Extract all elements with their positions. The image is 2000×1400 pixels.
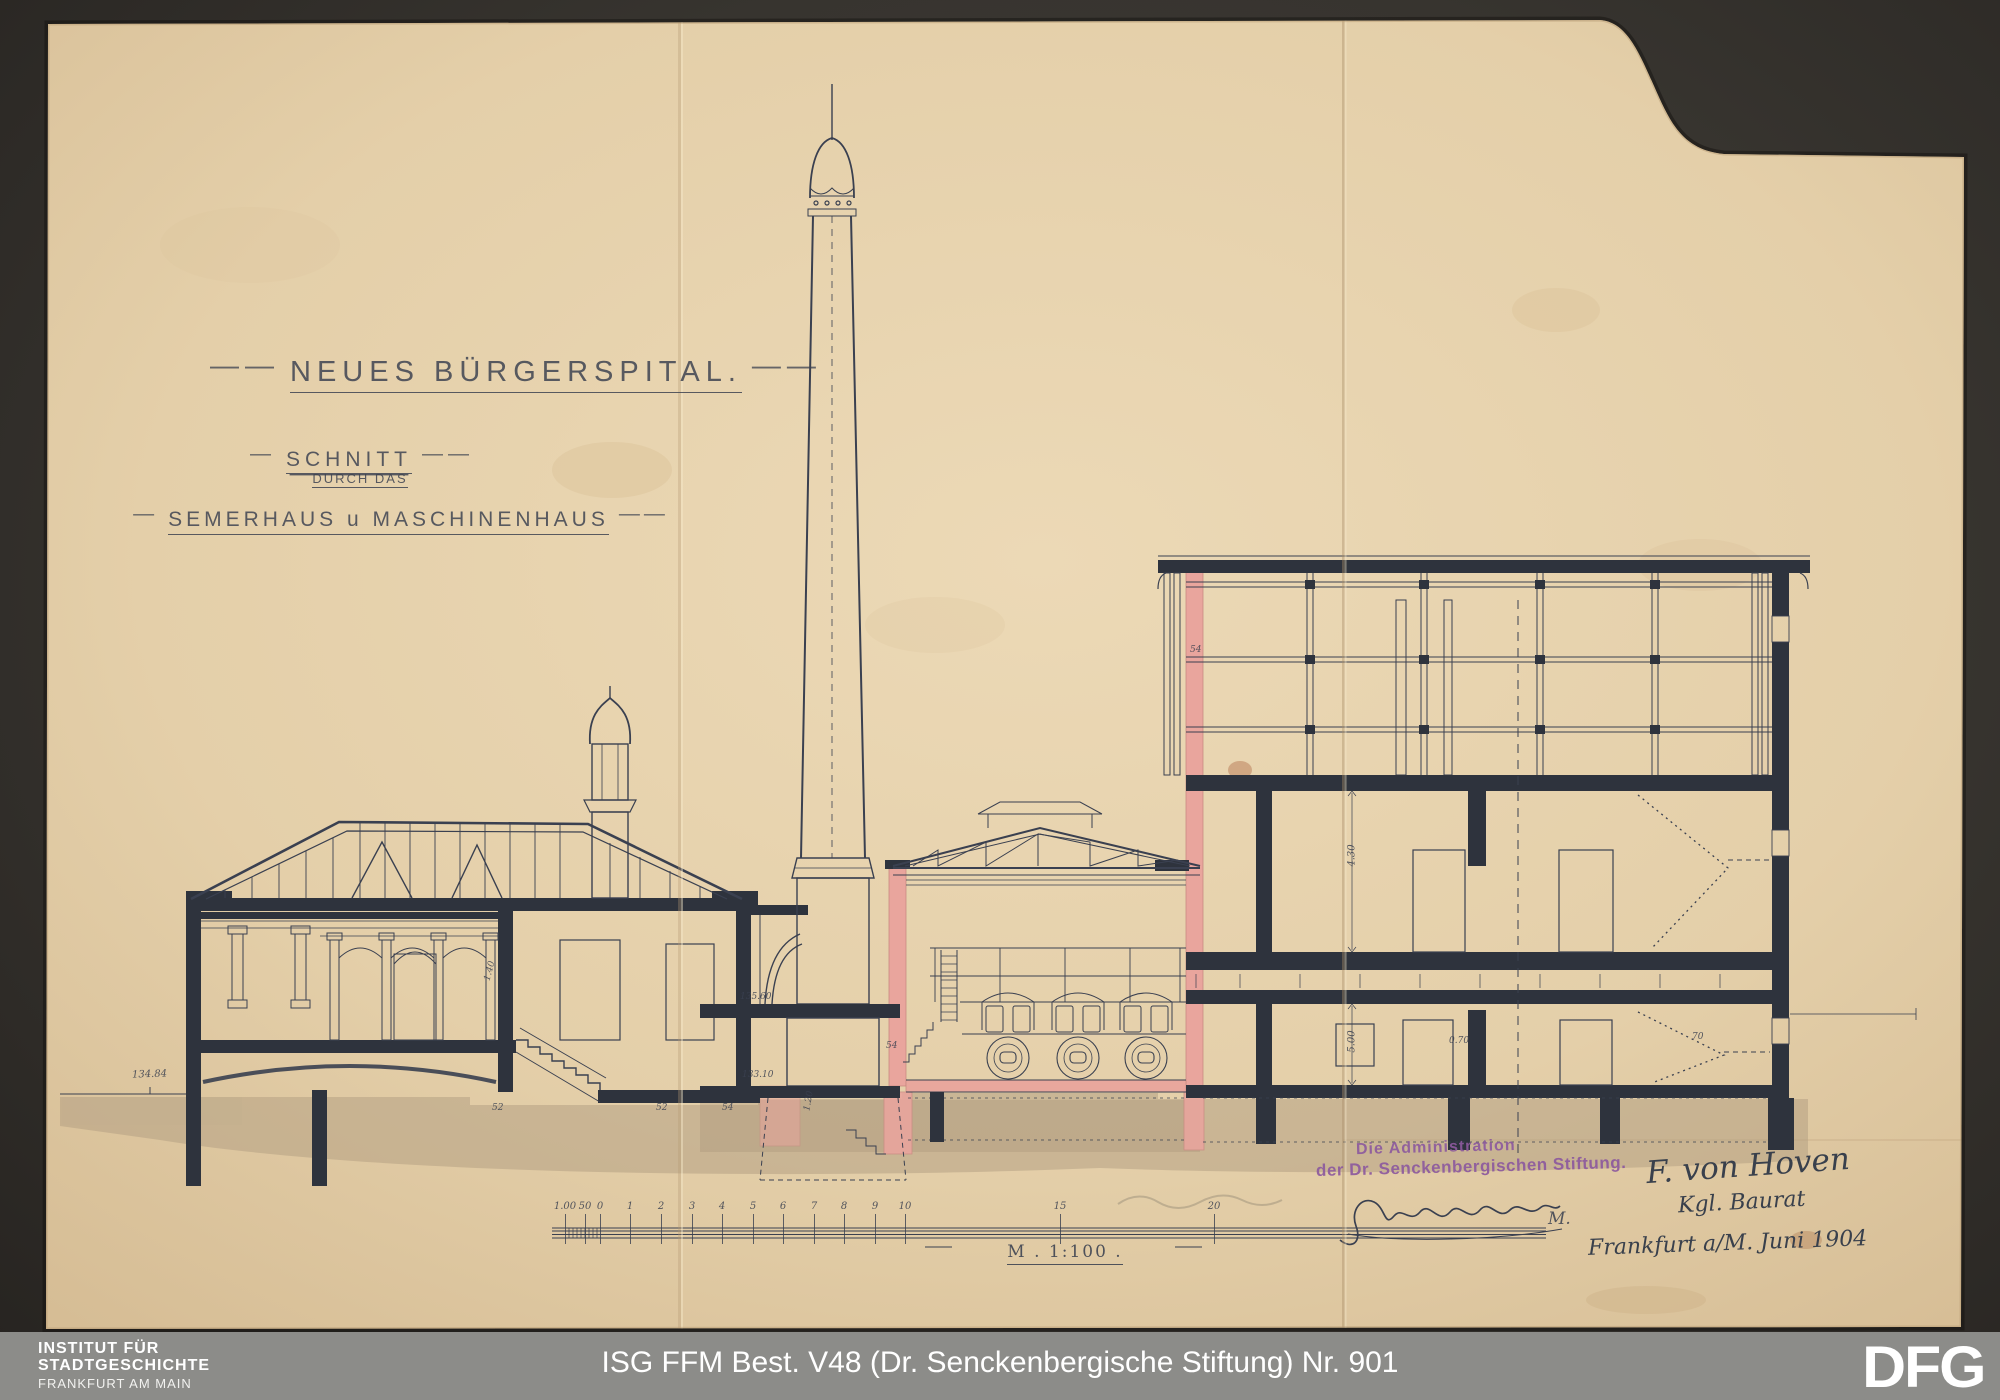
- archive-caption: ISG FFM Best. V48 (Dr. Senckenbergische …: [0, 1346, 2000, 1380]
- scale-label-text: M . 1:100 .: [1007, 1242, 1122, 1265]
- dimension-annotation: 133.10: [742, 1070, 774, 1080]
- scale-tick-label: 15: [1054, 1201, 1067, 1212]
- title-text: NEUES BÜRGERSPITAL.: [290, 356, 742, 393]
- scale-tick: [814, 1214, 815, 1244]
- scale-tick-label: 9: [872, 1201, 878, 1212]
- dimension-annotation: 54: [886, 1041, 897, 1051]
- dimension-annotation: 52: [492, 1103, 503, 1113]
- scale-tick-label: 1: [627, 1201, 633, 1212]
- dimension-annotation: M.: [1548, 1209, 1571, 1229]
- drawing-subtitle-3: —SEMERHAUS u MASCHINENHAUS——: [118, 502, 684, 532]
- scale-tick: [844, 1214, 845, 1244]
- dimension-annotation: 135.60: [740, 992, 772, 1002]
- drawing-subtitle-1: —SCHNITT——: [240, 442, 480, 472]
- scale-tick-label: 0: [597, 1201, 603, 1212]
- dimension-annotation: 0.70: [1449, 1036, 1469, 1046]
- scale-tick-label: 1.00: [554, 1201, 576, 1212]
- dimension-annotation: 70: [1692, 1032, 1703, 1042]
- scale-tick: [600, 1214, 601, 1244]
- scale-tick-label: 5: [750, 1201, 756, 1212]
- subtitle3-text: SEMERHAUS u MASCHINENHAUS: [168, 508, 609, 535]
- scale-tick: [692, 1214, 693, 1244]
- scale-tick: [905, 1214, 906, 1244]
- scale-tick: [722, 1214, 723, 1244]
- dimension-annotation: 5.00: [1347, 1030, 1358, 1052]
- scale-label: M . 1:100 .: [940, 1242, 1190, 1262]
- scale-tick: [630, 1214, 631, 1244]
- scale-tick-label: 10: [899, 1201, 912, 1212]
- dimension-annotation: 4.30: [1347, 844, 1358, 866]
- scale-tick: [783, 1214, 784, 1244]
- subtitle-dash: —: [250, 442, 276, 466]
- scale-tick-label: 20: [1208, 1201, 1221, 1212]
- dimension-annotation: 52: [656, 1103, 667, 1113]
- scale-tick: [875, 1214, 876, 1244]
- caption-bar: INSTITUT FÜR STADTGESCHICHTE FRANKFURT A…: [0, 1332, 2000, 1400]
- title-dash-right: ——: [752, 350, 822, 383]
- scale-tick-label: 2: [658, 1201, 664, 1212]
- scale-tick: [1214, 1214, 1215, 1244]
- archive-scan-viewer: ——NEUES BÜRGERSPITAL.—— —SCHNITT—— DURCH…: [0, 0, 2000, 1400]
- scale-tick-label: 50: [579, 1201, 592, 1212]
- dimension-annotation: 54: [722, 1103, 733, 1113]
- subtitle-dash: ——: [422, 442, 474, 466]
- drawing-title: ——NEUES BÜRGERSPITAL.——: [200, 350, 680, 389]
- scale-tick-label: 4: [719, 1201, 725, 1212]
- title-dash-left: ——: [210, 350, 280, 383]
- scale-tick: [661, 1214, 662, 1244]
- subtitle2-text: DURCH DAS: [312, 471, 407, 488]
- scale-tick: [1060, 1214, 1061, 1244]
- subtitle-dash: —: [133, 502, 158, 526]
- scale-tick: [585, 1214, 586, 1244]
- scale-tick: [565, 1214, 566, 1244]
- scale-tick-label: 6: [780, 1201, 786, 1212]
- scale-tick-label: 3: [689, 1201, 695, 1212]
- subtitle-dash: ——: [619, 502, 669, 526]
- dimension-annotation: 134.84: [132, 1068, 167, 1080]
- scale-tick: [753, 1214, 754, 1244]
- dimension-annotation: 54: [1190, 645, 1201, 655]
- scale-tick-label: 7: [811, 1201, 817, 1212]
- dfg-logo: DFG: [1862, 1334, 1984, 1400]
- drawing-subtitle-2: DURCH DAS: [300, 471, 420, 486]
- scanned-drawing: [0, 0, 2000, 1332]
- scale-tick-label: 8: [841, 1201, 847, 1212]
